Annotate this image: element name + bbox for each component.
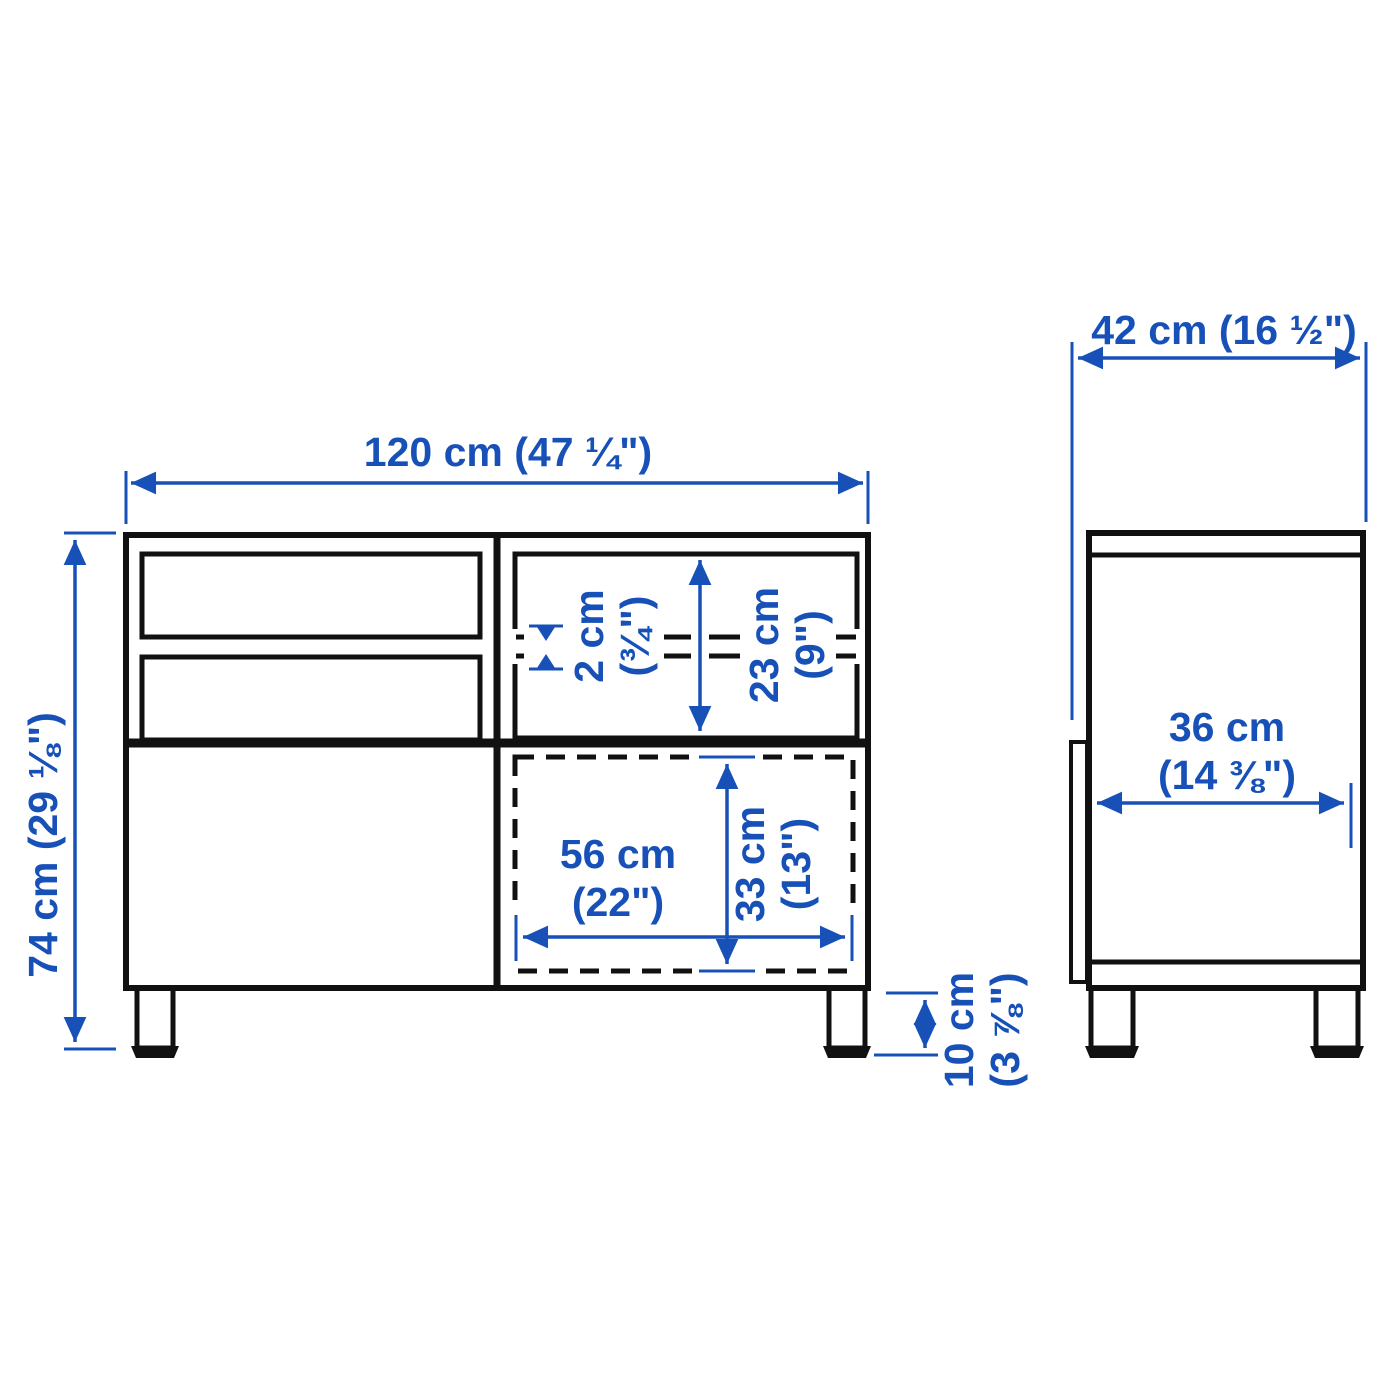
leg-cap-front-right — [823, 1046, 871, 1058]
compartment-height-label-line2: (9") — [787, 610, 833, 680]
leg-side-front — [1091, 988, 1133, 1048]
shelf-thickness-label-line2: (¾") — [612, 596, 658, 677]
dimension-diagram-svg: 120 cm (47 ¼") 74 cm (29 ⅛") 23 cm (9") … — [0, 0, 1400, 1400]
dim-overall-height: 74 cm (29 ⅛") — [20, 533, 116, 1049]
leg-cap-front-left — [131, 1046, 179, 1058]
front-height-label: 74 cm (29 ⅛") — [20, 712, 66, 978]
shelf-thickness-label-line1: 2 cm — [566, 589, 612, 682]
leg-height-label-line1: 10 cm — [936, 972, 982, 1088]
interior-depth-label-line1: 36 cm — [1169, 704, 1285, 750]
shelf-wall-seam-left — [510, 629, 521, 664]
side-depth-label: 42 cm (16 ½") — [1091, 307, 1357, 353]
dim-interior-depth: 36 cm (14 ⅜") — [1097, 704, 1351, 848]
leg-height-label-line2: (3 ⅞") — [982, 972, 1028, 1087]
dim-overall-depth: 42 cm (16 ½") — [1072, 307, 1366, 720]
leg-cap-side-front — [1085, 1046, 1139, 1058]
interior-depth-label-line2: (14 ⅜") — [1158, 752, 1296, 798]
label-33: 33 cm (13") — [727, 806, 819, 922]
dim-shelf-thickness: 2 cm (¾") — [529, 589, 658, 682]
dimension-diagram: 120 cm (47 ¼") 74 cm (29 ⅛") 23 cm (9") … — [0, 0, 1400, 1400]
dim-overall-width: 120 cm (47 ¼") — [126, 429, 868, 524]
leg-cap-side-back — [1310, 1046, 1364, 1058]
leg-front-right — [829, 988, 865, 1048]
label-2: 2 cm (¾") — [566, 589, 658, 682]
dim-opening-height: 33 cm (13") — [699, 757, 819, 971]
leg-front-left — [137, 988, 173, 1048]
shelf-wall-seam-right — [851, 629, 862, 664]
drawer-front-lower — [142, 657, 480, 740]
compartment-height-label-line1: 23 cm — [741, 587, 787, 703]
opening-height-label-line2: (13") — [773, 818, 819, 910]
opening-height-label-line1: 33 cm — [727, 806, 773, 922]
drawer-front-upper — [142, 554, 480, 637]
opening-width-label-line2: (22") — [572, 879, 664, 925]
front-width-label: 120 cm (47 ¼") — [364, 429, 652, 475]
opening-width-label-line1: 56 cm — [560, 831, 676, 877]
label-10: 10 cm (3 ⅞") — [936, 972, 1028, 1088]
leg-side-back — [1316, 988, 1358, 1048]
dim-leg-height: 10 cm (3 ⅞") — [874, 972, 1028, 1088]
side-door-panel — [1071, 742, 1087, 982]
